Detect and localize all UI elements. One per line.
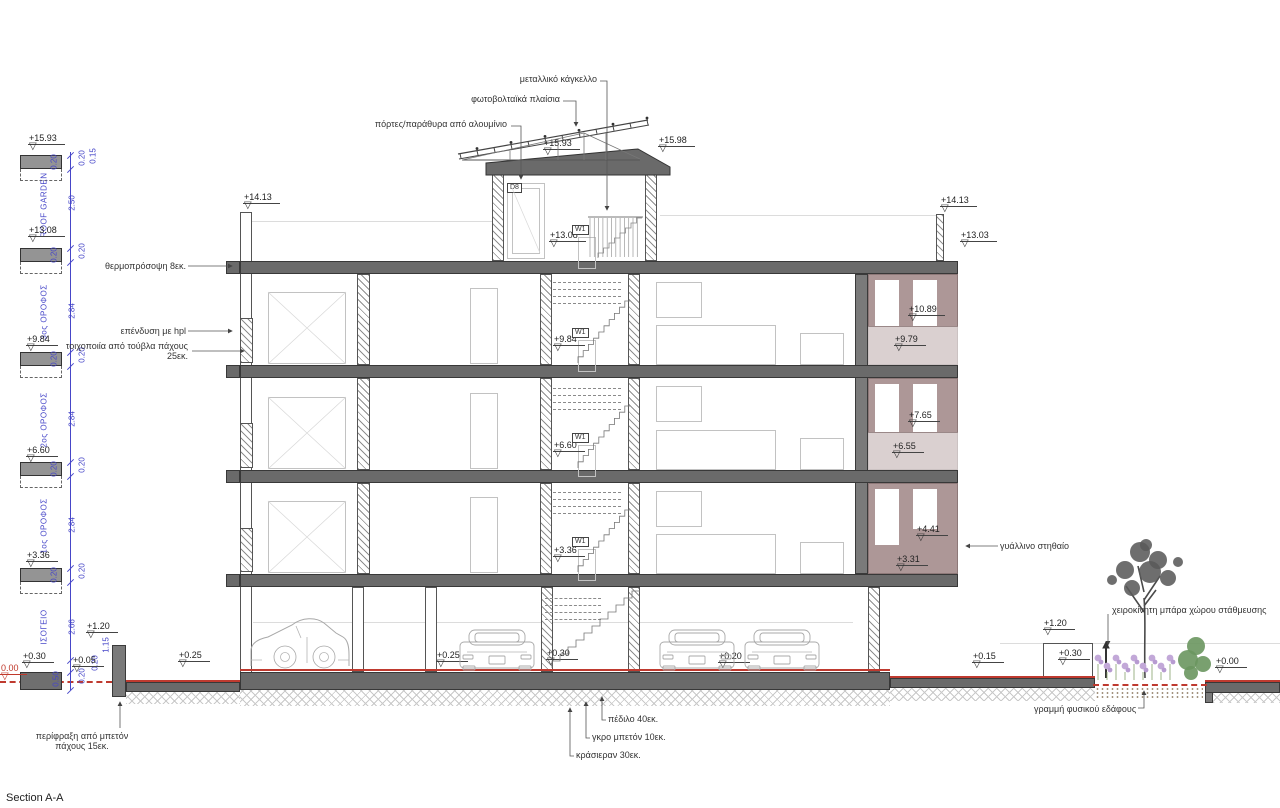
dimension-v015: 0.15 [89, 148, 98, 164]
annotation-fence: περίφραξη από μπετόν πάχους 15εκ. [28, 731, 136, 751]
stair-flight-dashed [545, 612, 601, 613]
level-marker-icon: ▽ [941, 204, 949, 214]
kitchen-upper-cabinet [656, 386, 702, 422]
partition-wall [357, 274, 370, 365]
level-marker-st336: +3.36▽ [553, 546, 585, 557]
stair-flight-dashed [553, 499, 621, 500]
level-marker-g030r: +0.30▽ [1058, 649, 1090, 660]
window-tag: W1 [572, 537, 589, 547]
ground-level-red-line [1205, 680, 1280, 682]
level-marker-pr1413: +14.13▽ [940, 196, 977, 207]
ground-column [352, 587, 364, 672]
level-marker-icon: ▽ [1216, 665, 1224, 675]
stair-flight-dashed [553, 282, 621, 283]
stair-flight-dashed [545, 605, 601, 606]
slab-symbol-dashed [20, 582, 62, 594]
guide-line [660, 215, 936, 216]
level-marker-icon: ▽ [437, 659, 445, 669]
stairwell-wall [868, 587, 880, 672]
dimension-l5: 0.20 [50, 567, 59, 583]
left-yard-slab [126, 682, 240, 692]
dimension-r5: 0.20 [78, 563, 87, 579]
partition-wall [357, 483, 370, 574]
dimension-v050: 0.50 [52, 671, 61, 687]
stair-flight-dashed [553, 513, 621, 514]
kitchen-upper-cabinet [656, 491, 702, 527]
level-marker-lc005: +0.05▽ [72, 656, 104, 667]
partition-wall [357, 378, 370, 470]
dimension-v250: 2.50 [68, 195, 77, 211]
dimension-r1: 0.20 [78, 150, 87, 166]
bedroom-door-elevation [268, 292, 346, 364]
dimension-v266: 2.66 [68, 619, 77, 635]
ground-level-red-line [890, 676, 1095, 678]
yard-slab [890, 678, 1095, 688]
window-tag: W1 [572, 328, 589, 338]
annotation-lean-concrete: γκρο μπετόν 10εκ. [592, 732, 666, 742]
stairwell-wall [628, 378, 640, 470]
stair-flight-dashed [545, 619, 601, 620]
kitchen-upper-cabinet [656, 282, 702, 318]
stairwell-wall [540, 274, 552, 365]
level-marker-g120l: +1.20▽ [86, 622, 118, 633]
annotation-alu-doors: πόρτες/παράθυρα από αλουμίνιο [352, 119, 507, 129]
section-title: Section A-A [6, 792, 63, 804]
dimension-v284b: 2.84 [68, 411, 77, 427]
floor-slab [240, 574, 958, 587]
ground-hatch [890, 688, 1095, 701]
stairwell-wall [540, 483, 552, 574]
level-marker-pl1413: +14.13▽ [243, 193, 280, 204]
guide-line [1000, 643, 1280, 644]
level-marker-icon: ▽ [719, 660, 727, 670]
balcony-slab-stub [226, 574, 240, 587]
stair-flight-dashed [545, 598, 601, 599]
annotation-parking-barrier: χειροκίνητη μπάρα χώρου στάθμευσης [1112, 605, 1267, 615]
floor-slab [240, 365, 958, 378]
level-marker-icon: ▽ [73, 664, 81, 674]
guide-line [253, 622, 853, 623]
natural-ground-dashed-line [1093, 684, 1207, 686]
level-marker-icon: ▽ [29, 142, 37, 152]
stairwell-wall [628, 274, 640, 365]
bedroom-door-elevation [268, 501, 346, 573]
level-marker-g020: +0.20▽ [718, 652, 750, 663]
annotation-crusher-run: κράσιεραν 30εκ. [576, 750, 641, 760]
kitchen-base-cabinet [656, 430, 776, 470]
level-marker-lc000: 0.00▽ [0, 664, 27, 675]
level-marker-icon: ▽ [897, 563, 905, 573]
dimension-r4: 0.20 [78, 457, 87, 473]
level-marker-b979: +9.79▽ [894, 335, 926, 346]
left-fence-wall [112, 645, 126, 697]
level-marker-lc336: +3.36▽ [26, 551, 58, 562]
dimension-v284c: 2.84 [68, 517, 77, 533]
level-marker-b655: +6.55▽ [892, 442, 924, 453]
level-marker-lc1308: +13.08▽ [28, 226, 65, 237]
slab-symbol-dashed [20, 366, 62, 378]
level-marker-b765: +7.65▽ [908, 411, 940, 422]
kitchen-base-cabinet [656, 534, 776, 574]
stairwell-wall [628, 587, 640, 672]
level-marker-lc984: +9.84▽ [26, 335, 58, 346]
stair-enclosure-wall [492, 172, 504, 261]
dimension-v284a: 2.84 [68, 303, 77, 319]
slab-symbol-dashed [20, 476, 62, 488]
interior-door-elevation [470, 288, 498, 364]
stair-enclosure-wall [645, 172, 657, 261]
annotation-thermal-facade: θερμοπρόσοψη 8εκ. [36, 261, 186, 271]
ground-level-red-line [240, 669, 890, 671]
level-marker-icon: ▽ [27, 559, 35, 569]
balcony-slab-stub [226, 261, 240, 274]
window-tag: W1 [572, 225, 589, 235]
level-marker-icon: ▽ [659, 144, 667, 154]
furniture-table [800, 438, 844, 470]
balcony-window-slot [875, 384, 899, 432]
level-marker-icon: ▽ [554, 449, 562, 459]
balcony-window-slot [875, 280, 899, 326]
level-marker-icon: ▽ [554, 554, 562, 564]
level-marker-lc1593: +15.93▽ [28, 134, 65, 145]
interior-door-elevation [470, 497, 498, 573]
annotation-natural-ground: γραμμή φυσικού εδάφους [1034, 704, 1136, 714]
level-marker-icon: ▽ [917, 533, 925, 543]
level-marker-pr1303: +13.03▽ [960, 231, 997, 242]
stair-flight-dashed [553, 388, 621, 389]
right-yard-slab [1205, 682, 1280, 693]
level-marker-icon: ▽ [893, 450, 901, 460]
annotation-pv-panels: φωτοβολταϊκά πλαίσια [408, 94, 560, 104]
level-marker-icon: ▽ [909, 419, 917, 429]
annotation-metal-railing: μεταλλικό κάγκελλο [437, 74, 597, 84]
planter-soil [1095, 687, 1203, 699]
level-marker-g120r: +1.20▽ [1043, 619, 1075, 630]
level-marker-lc660: +6.60▽ [26, 446, 58, 457]
stair-flight-dashed [553, 492, 621, 493]
level-marker-icon: ▽ [87, 630, 95, 640]
dimension-l3: 0.20 [50, 351, 59, 367]
bedroom-door-elevation [268, 397, 346, 469]
balcony-window-slot [913, 489, 937, 529]
level-marker-icon: ▽ [1, 672, 9, 682]
dimension-r2: 0.20 [78, 243, 87, 259]
level-marker-icon: ▽ [29, 234, 37, 244]
ground-hatch [126, 692, 240, 704]
level-marker-icon: ▽ [544, 147, 552, 157]
annotation-brick-wall: τοιχοποιία από τούβλα πάχους 25εκ. [60, 341, 188, 361]
level-marker-icon: ▽ [27, 343, 35, 353]
roof-stair-door-inner [512, 188, 540, 254]
window-sill-wall [240, 528, 253, 572]
balcony-slab-stub [226, 365, 240, 378]
dimension-v115: 1.15 [102, 637, 111, 653]
kitchen-base-cabinet [656, 325, 776, 365]
door-tag: D8 [507, 183, 522, 193]
level-marker-icon: ▽ [27, 454, 35, 464]
stairwell-wall [540, 378, 552, 470]
stair-flight-dashed [553, 395, 621, 396]
level-marker-b331: +3.31▽ [896, 555, 928, 566]
level-marker-icon: ▽ [550, 239, 558, 249]
furniture-table [800, 333, 844, 365]
guide-line [252, 221, 492, 222]
floor-label-ground-floor: ΙΣΟΓΕΙΟ [40, 609, 49, 644]
stair-flight-dashed [553, 409, 621, 410]
stair-flight-dashed [553, 296, 621, 297]
level-marker-g000r: +0.00▽ [1215, 657, 1247, 668]
dimension-tick [67, 687, 74, 694]
stair-flight-dashed [553, 303, 621, 304]
stair-flight-dashed [553, 289, 621, 290]
window-sill-wall [240, 318, 253, 363]
ground-level-red-line [126, 680, 240, 682]
level-marker-b1089: +10.89▽ [908, 305, 945, 316]
level-marker-icon: ▽ [1044, 627, 1052, 637]
floor-slab [240, 470, 958, 483]
level-marker-icon: ▽ [909, 313, 917, 323]
ground-slab [240, 672, 890, 690]
annotation-glass-parapet: γυάλλινο στηθαίο [1000, 541, 1069, 551]
level-marker-icon: ▽ [895, 343, 903, 353]
section-drawing: ROOF GARDEN3ος ΟΡΟΦΟΣ2ος ΟΡΟΦΟΣ1ος ΟΡΟΦΟ… [0, 0, 1280, 808]
ground-hatch [1205, 693, 1280, 703]
annotation-footing: πέδιλο 40εκ. [608, 714, 658, 724]
stairwell-wall [628, 483, 640, 574]
roof-parapet-post [936, 214, 944, 261]
level-marker-icon: ▽ [554, 343, 562, 353]
level-marker-icon: ▽ [547, 657, 555, 667]
level-marker-icon: ▽ [244, 201, 252, 211]
level-marker-icon: ▽ [1059, 657, 1067, 667]
level-marker-lc030: +0.30▽ [22, 652, 54, 663]
furniture-table [800, 542, 844, 574]
annotation-hpl-cladding: επένδυση με hpl [36, 326, 186, 336]
right-exterior-wall [855, 274, 868, 574]
level-marker-icon: ▽ [973, 660, 981, 670]
level-marker-icon: ▽ [179, 659, 187, 669]
level-marker-g030: +0.30▽ [546, 649, 578, 660]
ground-hatch [240, 690, 890, 706]
dimension-l1: 0.20 [50, 154, 59, 170]
stair-flight-dashed [553, 506, 621, 507]
level-marker-top1593: +15.93▽ [543, 139, 580, 150]
window-sill-wall [240, 423, 253, 468]
interior-door-elevation [470, 393, 498, 469]
floor-label-floor-2: 2ος ΟΡΟΦΟΣ [40, 392, 49, 447]
window-tag: W1 [572, 433, 589, 443]
level-marker-g025b: +0.25▽ [436, 651, 468, 662]
floor-slab [240, 261, 958, 274]
balcony-slab-stub [226, 470, 240, 483]
level-marker-top1598: +15.98▽ [658, 136, 695, 147]
level-marker-g025a: +0.25▽ [178, 651, 210, 662]
floor-label-floor-1: 1ος ΟΡΟΦΟΣ [40, 498, 49, 553]
balcony-window-slot [875, 489, 899, 545]
stair-flight-dashed [553, 402, 621, 403]
level-marker-b441: +4.41▽ [916, 525, 948, 536]
level-marker-g015: +0.15▽ [972, 652, 1004, 663]
dimension-l4: 0.20 [50, 461, 59, 477]
level-marker-icon: ▽ [961, 239, 969, 249]
